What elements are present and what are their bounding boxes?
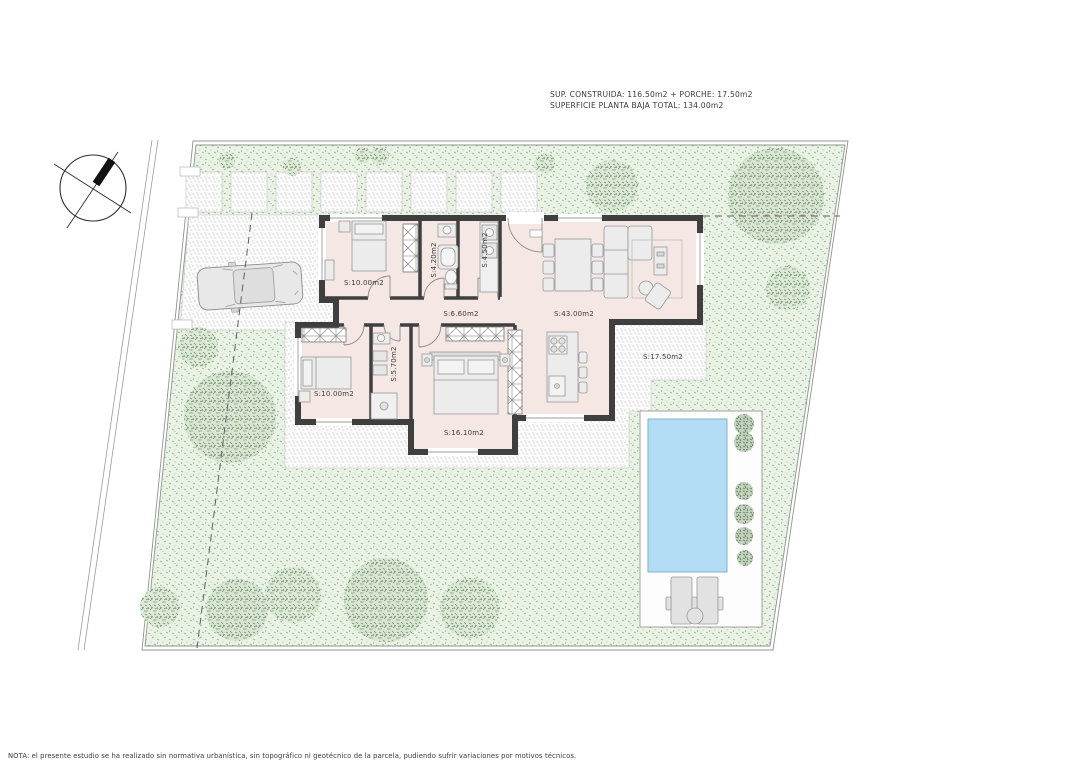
room-label-bathroom-2: S:5.70m2 — [390, 346, 398, 381]
north-arrow-icon — [54, 152, 131, 228]
room-label-living: S:43.00m2 — [554, 310, 594, 318]
bed-double — [422, 352, 510, 414]
room-label-bedroom-2: S:10.00m2 — [314, 390, 354, 398]
built-area-line: SUP. CONSTRUIDA: 116.50m2 + PORCHE: 17.5… — [550, 90, 753, 99]
total-area-line: SUPERFICIE PLANTA BAJA TOTAL: 134.00m2 — [550, 101, 724, 110]
room-label-storage: S:4.50m2 — [481, 232, 489, 267]
room-label-bathroom-1: S:4.20m2 — [430, 242, 438, 277]
site-plan-sheet: S:10.00m2 S:4.20m2 S:4.50m2 S:6.60m2 S:4… — [0, 0, 1080, 763]
tv-unit — [654, 247, 667, 275]
road-edge-lines — [78, 140, 158, 650]
pool-area — [640, 411, 762, 627]
pool-side-table — [687, 608, 703, 624]
room-label-bedroom-1: S:10.00m2 — [344, 279, 384, 287]
room-label-bedroom-3: S:16.10m2 — [444, 429, 484, 437]
dining-set — [543, 239, 603, 291]
room-label-porch: S:17.50m2 — [643, 353, 683, 361]
title-block: SUP. CONSTRUIDA: 116.50m2 + PORCHE: 17.5… — [550, 90, 753, 110]
entry-step — [530, 230, 542, 237]
room-label-hallway: S:6.60m2 — [443, 310, 478, 318]
footer-note: NOTA: el presente estudio se ha realizad… — [8, 752, 576, 760]
site-plan-drawing: S:10.00m2 S:4.20m2 S:4.50m2 S:6.60m2 S:4… — [0, 0, 1080, 763]
pool — [648, 419, 727, 572]
